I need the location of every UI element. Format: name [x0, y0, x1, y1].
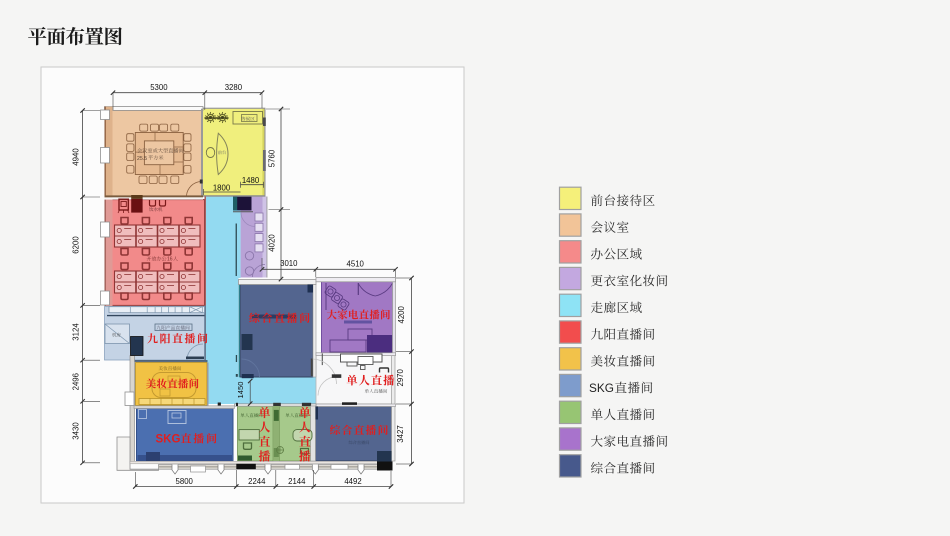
svg-text:4510: 4510: [347, 260, 365, 269]
svg-text:4492: 4492: [344, 477, 361, 486]
svg-text:4200: 4200: [397, 305, 406, 323]
svg-text:16: 16: [167, 257, 173, 263]
svg-text:SKG: SKG: [156, 434, 181, 446]
svg-text:5800: 5800: [176, 477, 194, 486]
svg-text:2496: 2496: [72, 373, 81, 390]
svg-text:25.5: 25.5: [137, 156, 147, 162]
svg-text:3124: 3124: [72, 323, 81, 341]
svg-text:2244: 2244: [248, 477, 266, 486]
svg-text:1450: 1450: [236, 382, 245, 399]
svg-text:2144: 2144: [288, 477, 306, 486]
svg-text:3427: 3427: [396, 425, 405, 442]
svg-text:1480: 1480: [242, 176, 260, 185]
svg-text:4940: 4940: [72, 148, 81, 166]
svg-text:5300: 5300: [150, 83, 168, 92]
svg-text:3430: 3430: [72, 422, 81, 440]
svg-text:1800: 1800: [213, 184, 231, 193]
svg-text:3010: 3010: [280, 259, 298, 268]
svg-text:2970: 2970: [396, 368, 405, 386]
svg-text:5760: 5760: [267, 149, 276, 167]
svg-text:3280: 3280: [225, 83, 243, 92]
svg-text:6200: 6200: [72, 236, 81, 254]
svg-text:SKG: SKG: [589, 381, 614, 395]
svg-text:4020: 4020: [267, 234, 276, 252]
